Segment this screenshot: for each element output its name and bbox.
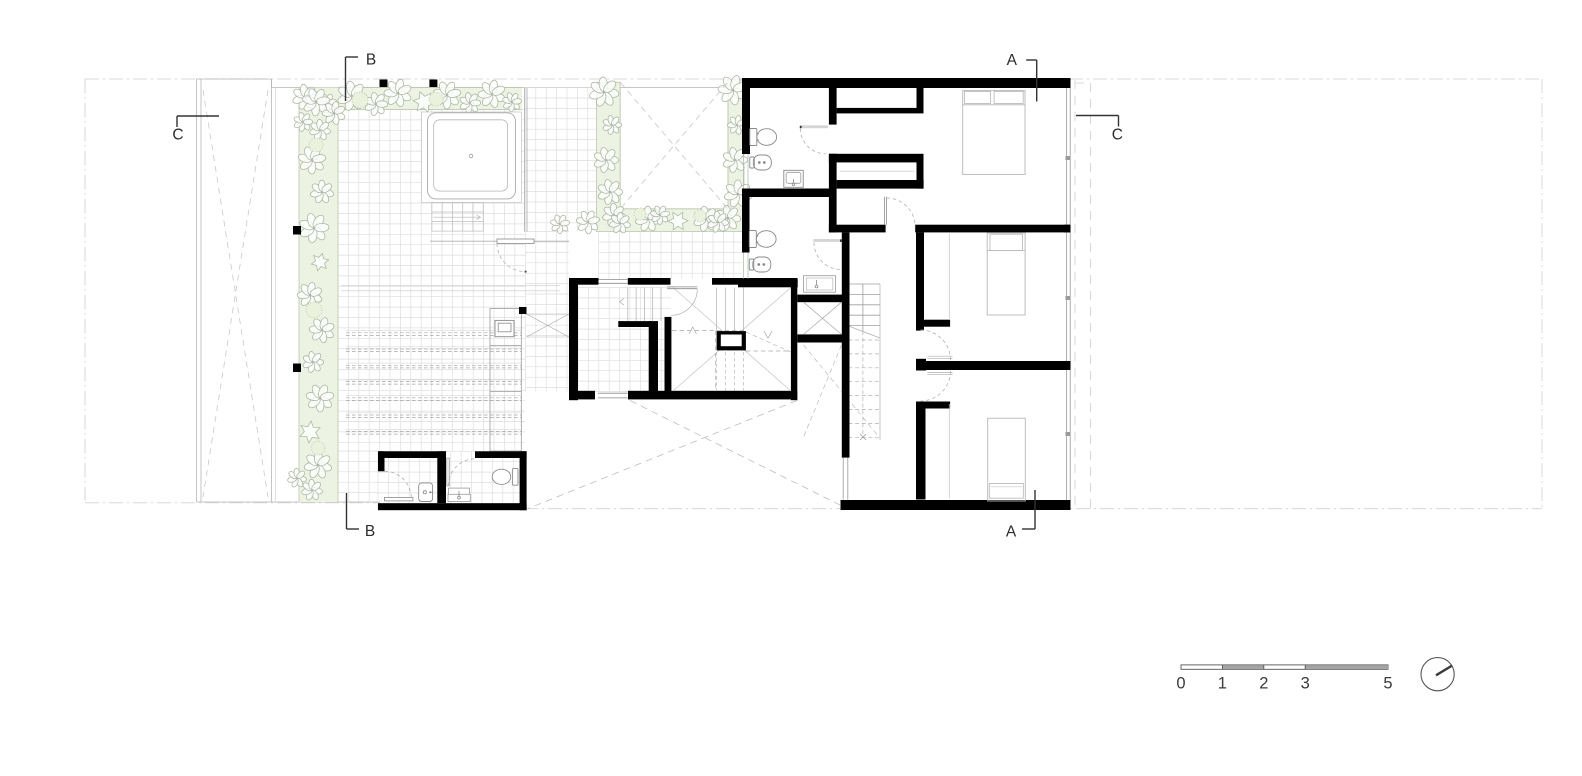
svg-text:B: B: [365, 523, 376, 540]
svg-text:5: 5: [1383, 675, 1392, 693]
svg-text:A: A: [1007, 52, 1018, 69]
svg-text:C: C: [172, 127, 184, 144]
svg-text:3: 3: [1301, 675, 1310, 693]
svg-text:1: 1: [1218, 675, 1227, 693]
svg-text:2: 2: [1259, 675, 1268, 693]
svg-text:0: 0: [1176, 675, 1185, 693]
svg-text:B: B: [366, 52, 377, 69]
svg-text:C: C: [1112, 127, 1124, 144]
svg-text:A: A: [1006, 524, 1017, 541]
